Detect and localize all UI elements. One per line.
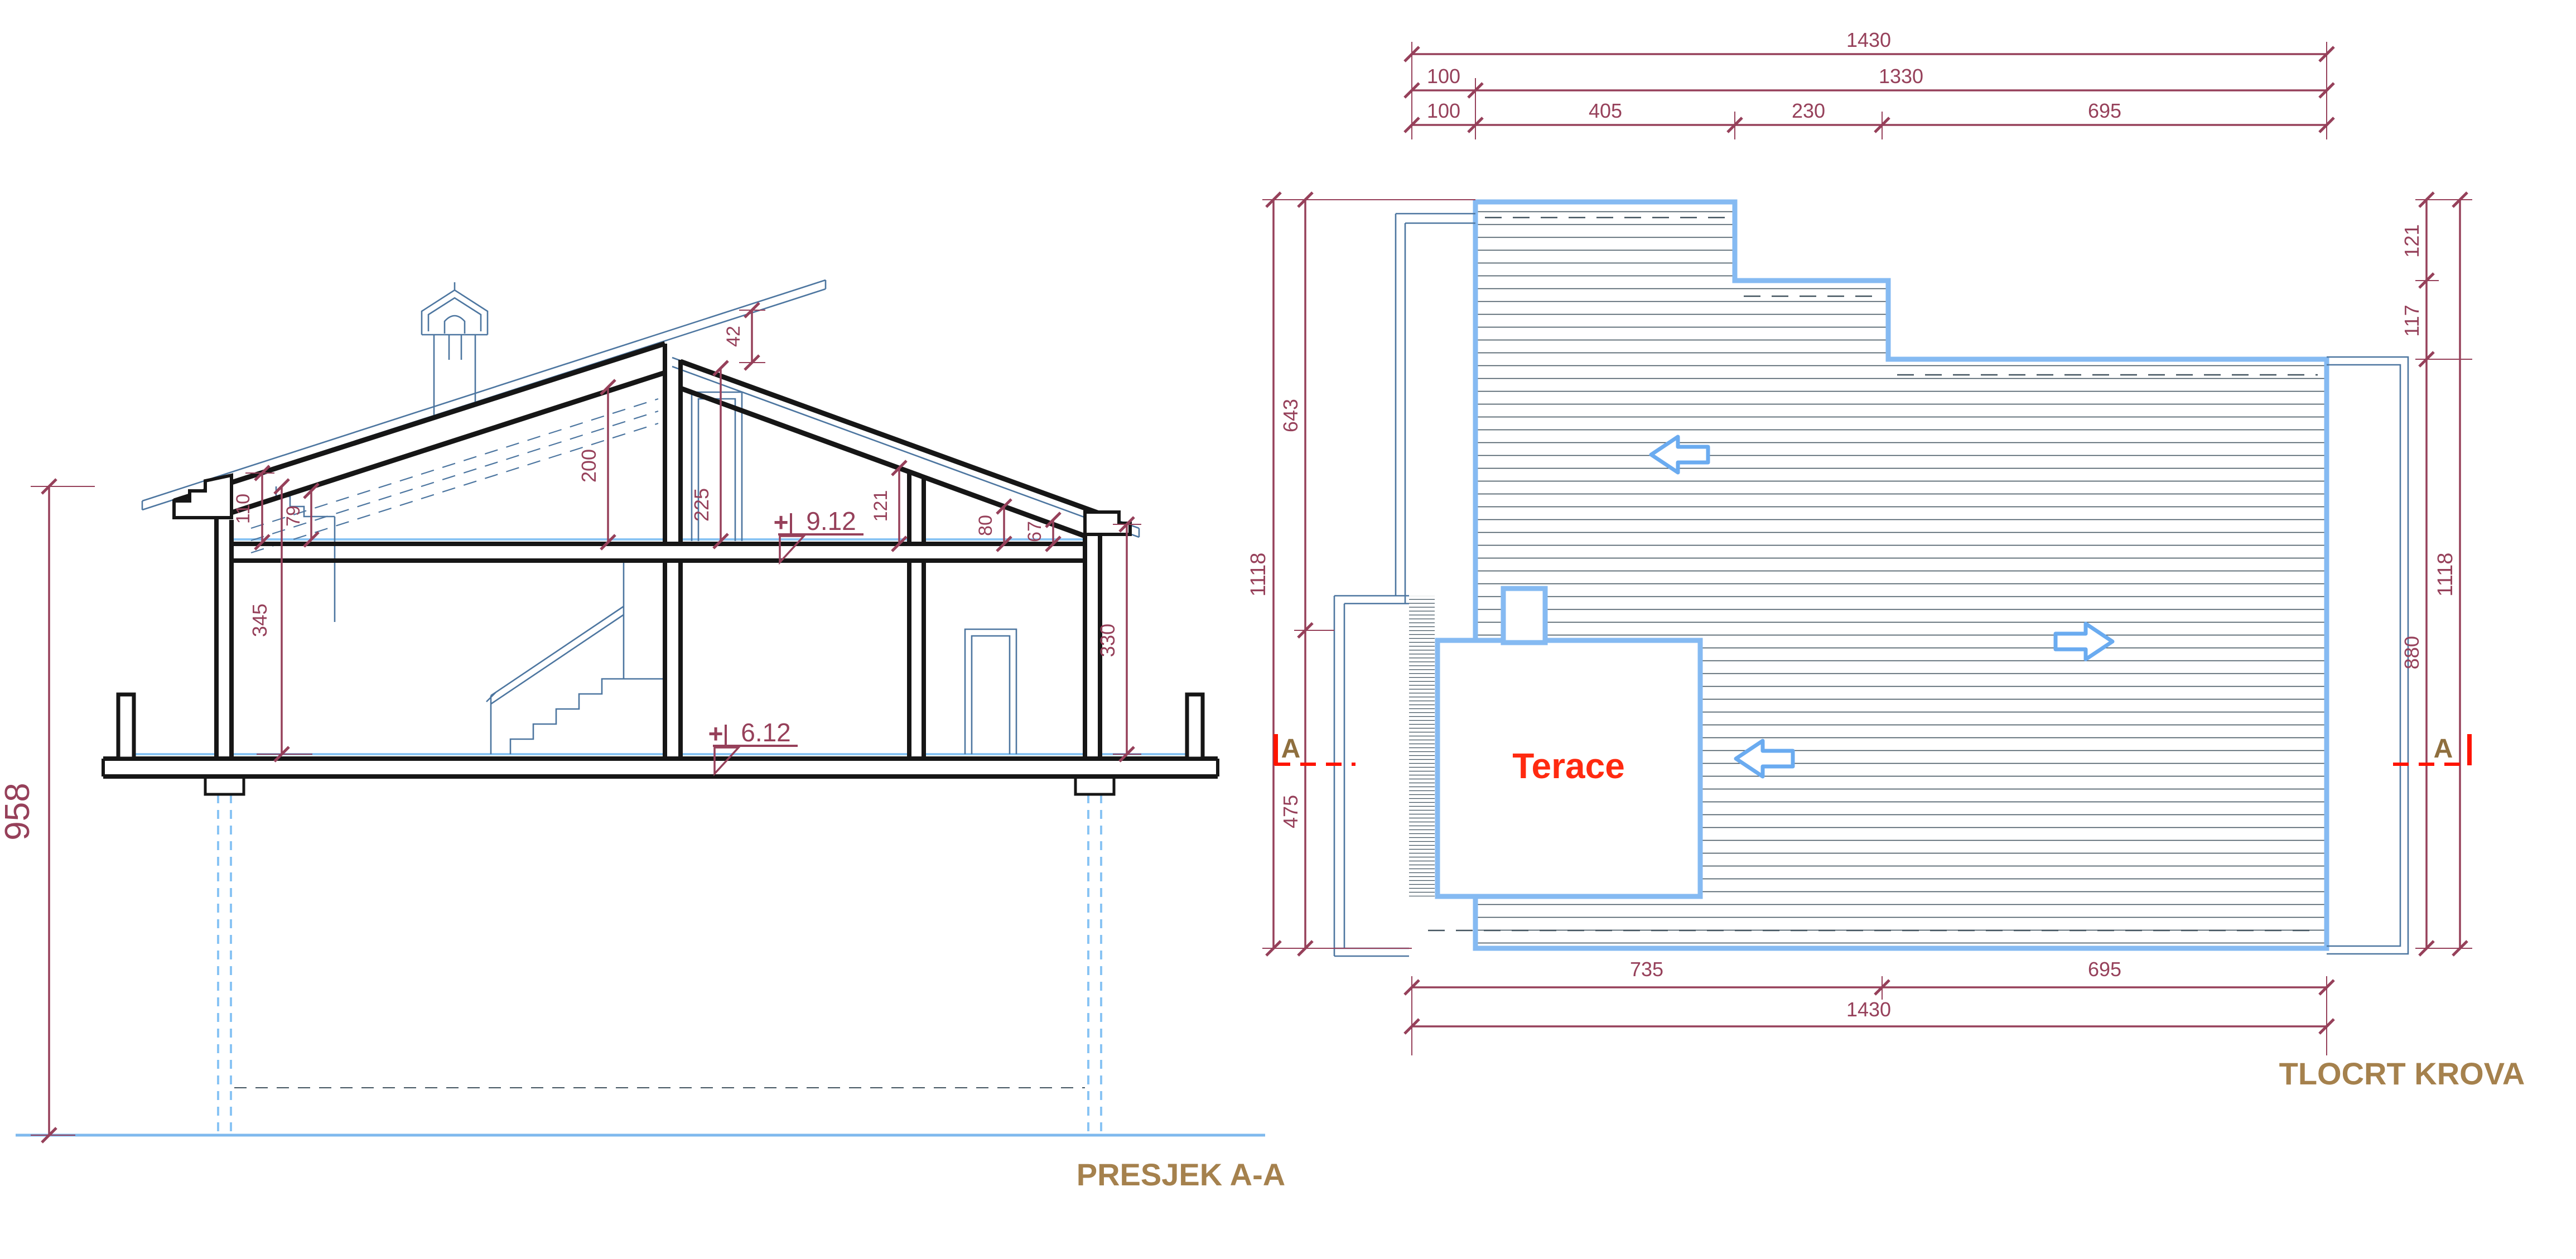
slab-ends [103,759,1218,776]
terrace-chimney-notch [1503,589,1545,643]
section-marker-right: A [2434,734,2453,764]
dim-top-r3-1: 405 [1589,99,1622,122]
dim-attic-right-b: 67 [1024,521,1045,542]
section-view: + 9.12 + 6.12 958 345 110 79 200 225 42 … [0,280,1285,1192]
dim-right-inner-1: 117 [2400,305,2423,336]
dim-top-r3-2: 230 [1792,99,1825,122]
foundation-dashed-lines [218,794,1101,1132]
level-prefix: + [708,719,723,748]
interior-door [965,629,1016,754]
dim-attic-wall-height: 121 [870,490,891,522]
dim-bottom-r1-1: 695 [2088,958,2121,981]
dim-knee-wall-left: 110 [233,494,254,524]
right-parapet [1187,694,1203,759]
dim-top-r2-0: 100 [1427,65,1460,88]
dim-ridge-upstand: 42 [723,326,744,347]
dim-left-inner-1: 475 [1279,795,1302,828]
level-marker-upper: + 9.12 [774,507,864,562]
floor-finish-lines [134,539,1187,754]
dim-left-outer: 1118 [1247,553,1270,597]
level-value: 6.12 [741,718,791,747]
dim-attic-interior-height: 200 [577,449,600,483]
dim-top-total: 1430 [1846,28,1891,51]
left-parapet [118,694,134,759]
section-dim-guides [31,310,1141,1135]
dim-overall-height: 958 [0,783,37,840]
dim-eave-to-floor: 345 [248,604,271,637]
dim-top-r3-3: 695 [2088,99,2121,122]
dim-right-inner-0: 121 [2400,224,2423,258]
drawing-canvas: + 9.12 + 6.12 958 345 110 79 200 225 42 … [0,0,2576,1259]
right-eave-cornice [1085,512,1130,534]
eave-offset-outline-right [2327,357,2408,954]
staircase [486,561,665,754]
roof-slopes [174,344,1111,537]
walls [216,344,1100,759]
dim-bottom-r1-0: 735 [1630,958,1663,981]
chimney [422,282,488,418]
drawing-page: + 9.12 + 6.12 958 345 110 79 200 225 42 … [0,0,2576,1259]
dim-top-r2-1: 1330 [1879,65,1923,88]
roof-plan-view: A A 1430 100 1330 100 405 230 695 1118 6… [1247,28,2525,1091]
dim-cornice-drop-left: 79 [283,505,304,527]
dim-bottom-total: 1430 [1846,998,1891,1021]
footings [205,776,1114,794]
dim-right-outer: 1118 [2434,553,2457,597]
section-title: PRESJEK A-A [1077,1157,1285,1192]
section-dim-ticks [42,303,1134,1142]
section-marker-left: A [1281,734,1301,764]
dim-clerestory-window: 225 [690,488,713,522]
floor-slabs [103,544,1218,776]
level-prefix: + [774,508,789,537]
level-marker-ground: + 6.12 [708,718,798,774]
dim-right-wall-height: 330 [1096,624,1119,657]
dim-attic-right-a: 80 [975,515,996,536]
terrace-label: Terace [1512,746,1625,786]
roof-plan-title: TLOCRT KROVA [2279,1056,2525,1091]
level-value: 9.12 [806,507,856,536]
dim-top-r3-0: 100 [1427,99,1460,122]
dense-hatch-strip [1409,596,1435,896]
dim-right-inner-2: 880 [2400,636,2423,669]
dim-left-inner-0: 643 [1279,399,1302,432]
